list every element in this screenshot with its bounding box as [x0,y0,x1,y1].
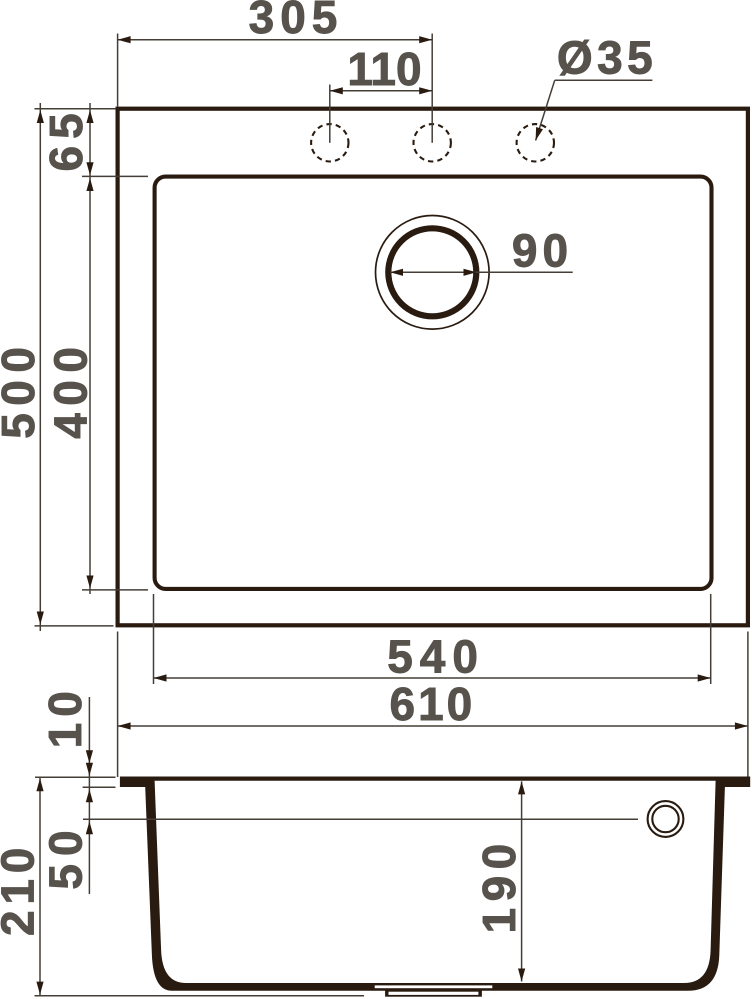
svg-text:540: 540 [387,630,485,682]
svg-text:65: 65 [40,106,92,171]
svg-text:190: 190 [473,837,525,933]
svg-text:400: 400 [45,340,97,439]
svg-text:210: 210 [0,842,43,936]
svg-text:90: 90 [512,224,573,276]
svg-text:500: 500 [0,340,44,439]
svg-text:610: 610 [390,678,476,730]
svg-text:50: 50 [39,822,91,889]
svg-text:110: 110 [347,43,421,95]
svg-text:10: 10 [39,685,91,748]
svg-text:Ø35: Ø35 [557,31,657,83]
svg-text:305: 305 [249,0,344,43]
